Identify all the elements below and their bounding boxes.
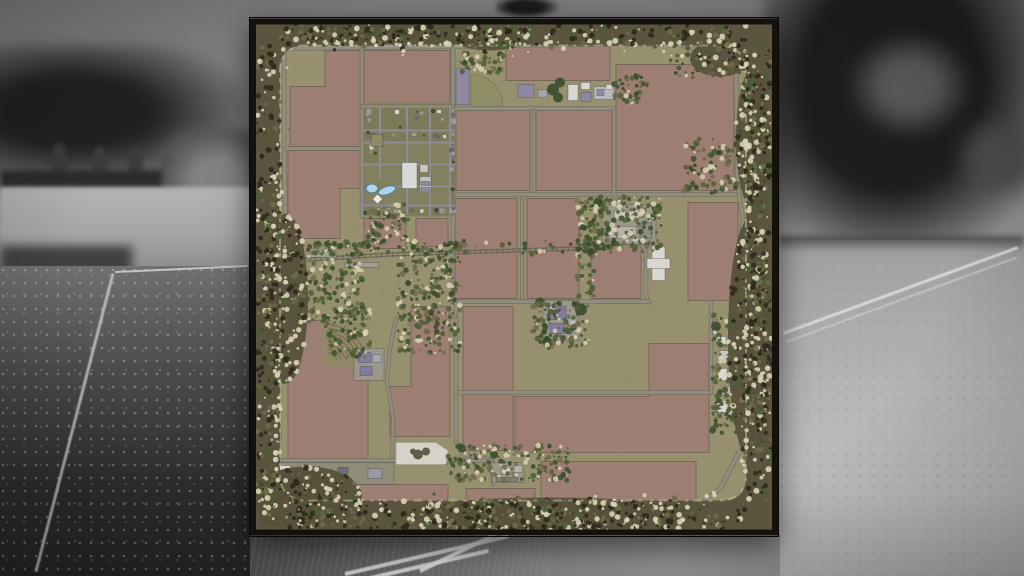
farm-map xyxy=(250,18,778,536)
screenshot xyxy=(0,0,1024,576)
farm-map-frame xyxy=(250,18,778,536)
